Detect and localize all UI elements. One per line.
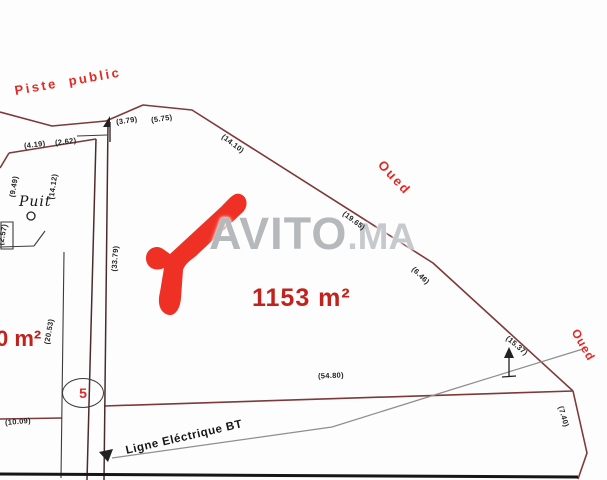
well-icon — [27, 212, 35, 220]
road-number-badge: 5 — [62, 378, 104, 408]
left-parcel-corner-line — [0, 153, 9, 168]
road-east-line — [104, 122, 108, 480]
land-survey-plan: AVITO.MA Piste public Oued Oued 1153 m² … — [0, 0, 607, 480]
watermark-brand: AVITO — [209, 211, 347, 256]
pole-symbol-bottom — [99, 449, 113, 462]
dim-33-79: (33.79) — [110, 245, 121, 271]
parcel-south-boundary — [104, 391, 573, 406]
pole-symbol-top — [103, 116, 110, 142]
parcel-area-label: 1153 m² — [252, 284, 351, 313]
piste-south-edge — [9, 139, 96, 153]
dim-54-80: (54.80) — [318, 371, 344, 381]
neighbor-area-label-partial: 0 m² — [0, 326, 41, 352]
road-number: 5 — [79, 385, 87, 401]
parcel-east-boundary — [573, 391, 587, 479]
watermark: AVITO.MA — [209, 211, 415, 256]
piste-north-edge — [0, 112, 106, 126]
left-parcel-inner-line — [0, 246, 34, 247]
left-parcel-tick — [34, 231, 45, 246]
road-west-line — [87, 139, 96, 480]
secondary-vertical-line — [61, 252, 64, 478]
pole-symbol-right — [502, 347, 516, 377]
road-tick-line — [77, 135, 107, 136]
